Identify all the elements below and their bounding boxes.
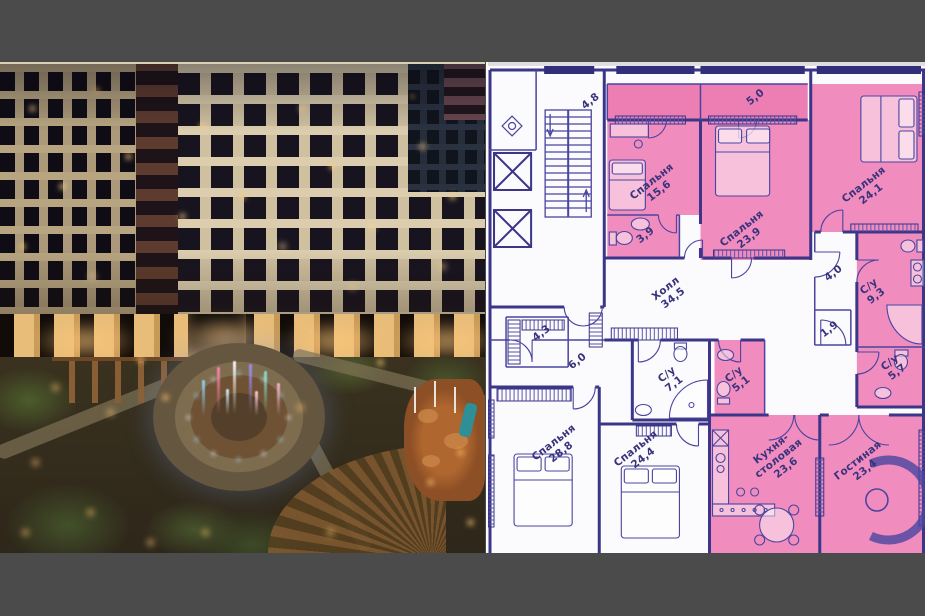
fountain-jet <box>226 389 229 415</box>
playground-pole <box>454 387 456 413</box>
playground-spot <box>418 409 438 423</box>
fountain-jet <box>255 391 258 416</box>
fountain-jet <box>233 361 236 414</box>
fountain-jet <box>249 364 252 413</box>
listing-gallery: 4,8 5,0 Спальня15,6 3,9 Спальня23,9 Спал… <box>0 0 925 616</box>
fountain-jet <box>277 383 280 416</box>
building-facades <box>0 62 485 318</box>
night-shading <box>0 64 485 322</box>
playground-pole <box>414 387 416 413</box>
playground-slide <box>458 402 478 438</box>
playground <box>404 379 485 501</box>
fountain-jet <box>202 380 205 416</box>
storefront-glow <box>392 320 485 362</box>
courtyard <box>0 357 485 553</box>
playground-pole <box>434 381 436 407</box>
fountain-jet <box>264 371 267 413</box>
fountain-plaza <box>153 343 325 491</box>
fountain-jet <box>217 367 220 414</box>
floor-plan[interactable]: 4,8 5,0 Спальня15,6 3,9 Спальня23,9 Спал… <box>486 62 925 553</box>
storefront-glow <box>30 320 140 362</box>
garden-lamps <box>0 357 1 358</box>
courtyard-photo[interactable] <box>0 62 485 553</box>
playground-spot <box>422 455 440 467</box>
